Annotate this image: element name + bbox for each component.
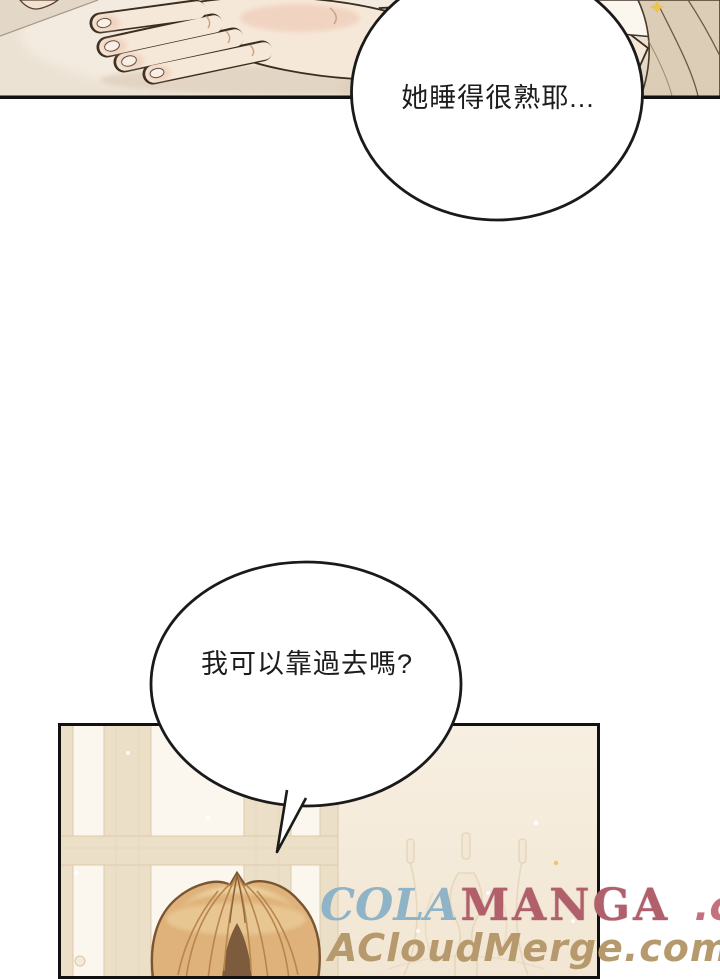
- room-art: [58, 723, 600, 979]
- gold-sparkle-small: [554, 861, 558, 865]
- manga-page: 她睡得很熟耶... 我可以靠過去嗎? COLAMANGA.com ACloudM…: [0, 0, 720, 979]
- speech-bubble-1-text: 她睡得很熟耶...: [352, 82, 644, 116]
- speech-bubble-2-text: 我可以靠過去嗎?: [151, 648, 463, 682]
- sleeve: [638, 0, 720, 99]
- window-knob: [75, 956, 85, 966]
- panel-bottom-room: [58, 723, 600, 979]
- watermark-dotcom-text: .com: [694, 884, 720, 930]
